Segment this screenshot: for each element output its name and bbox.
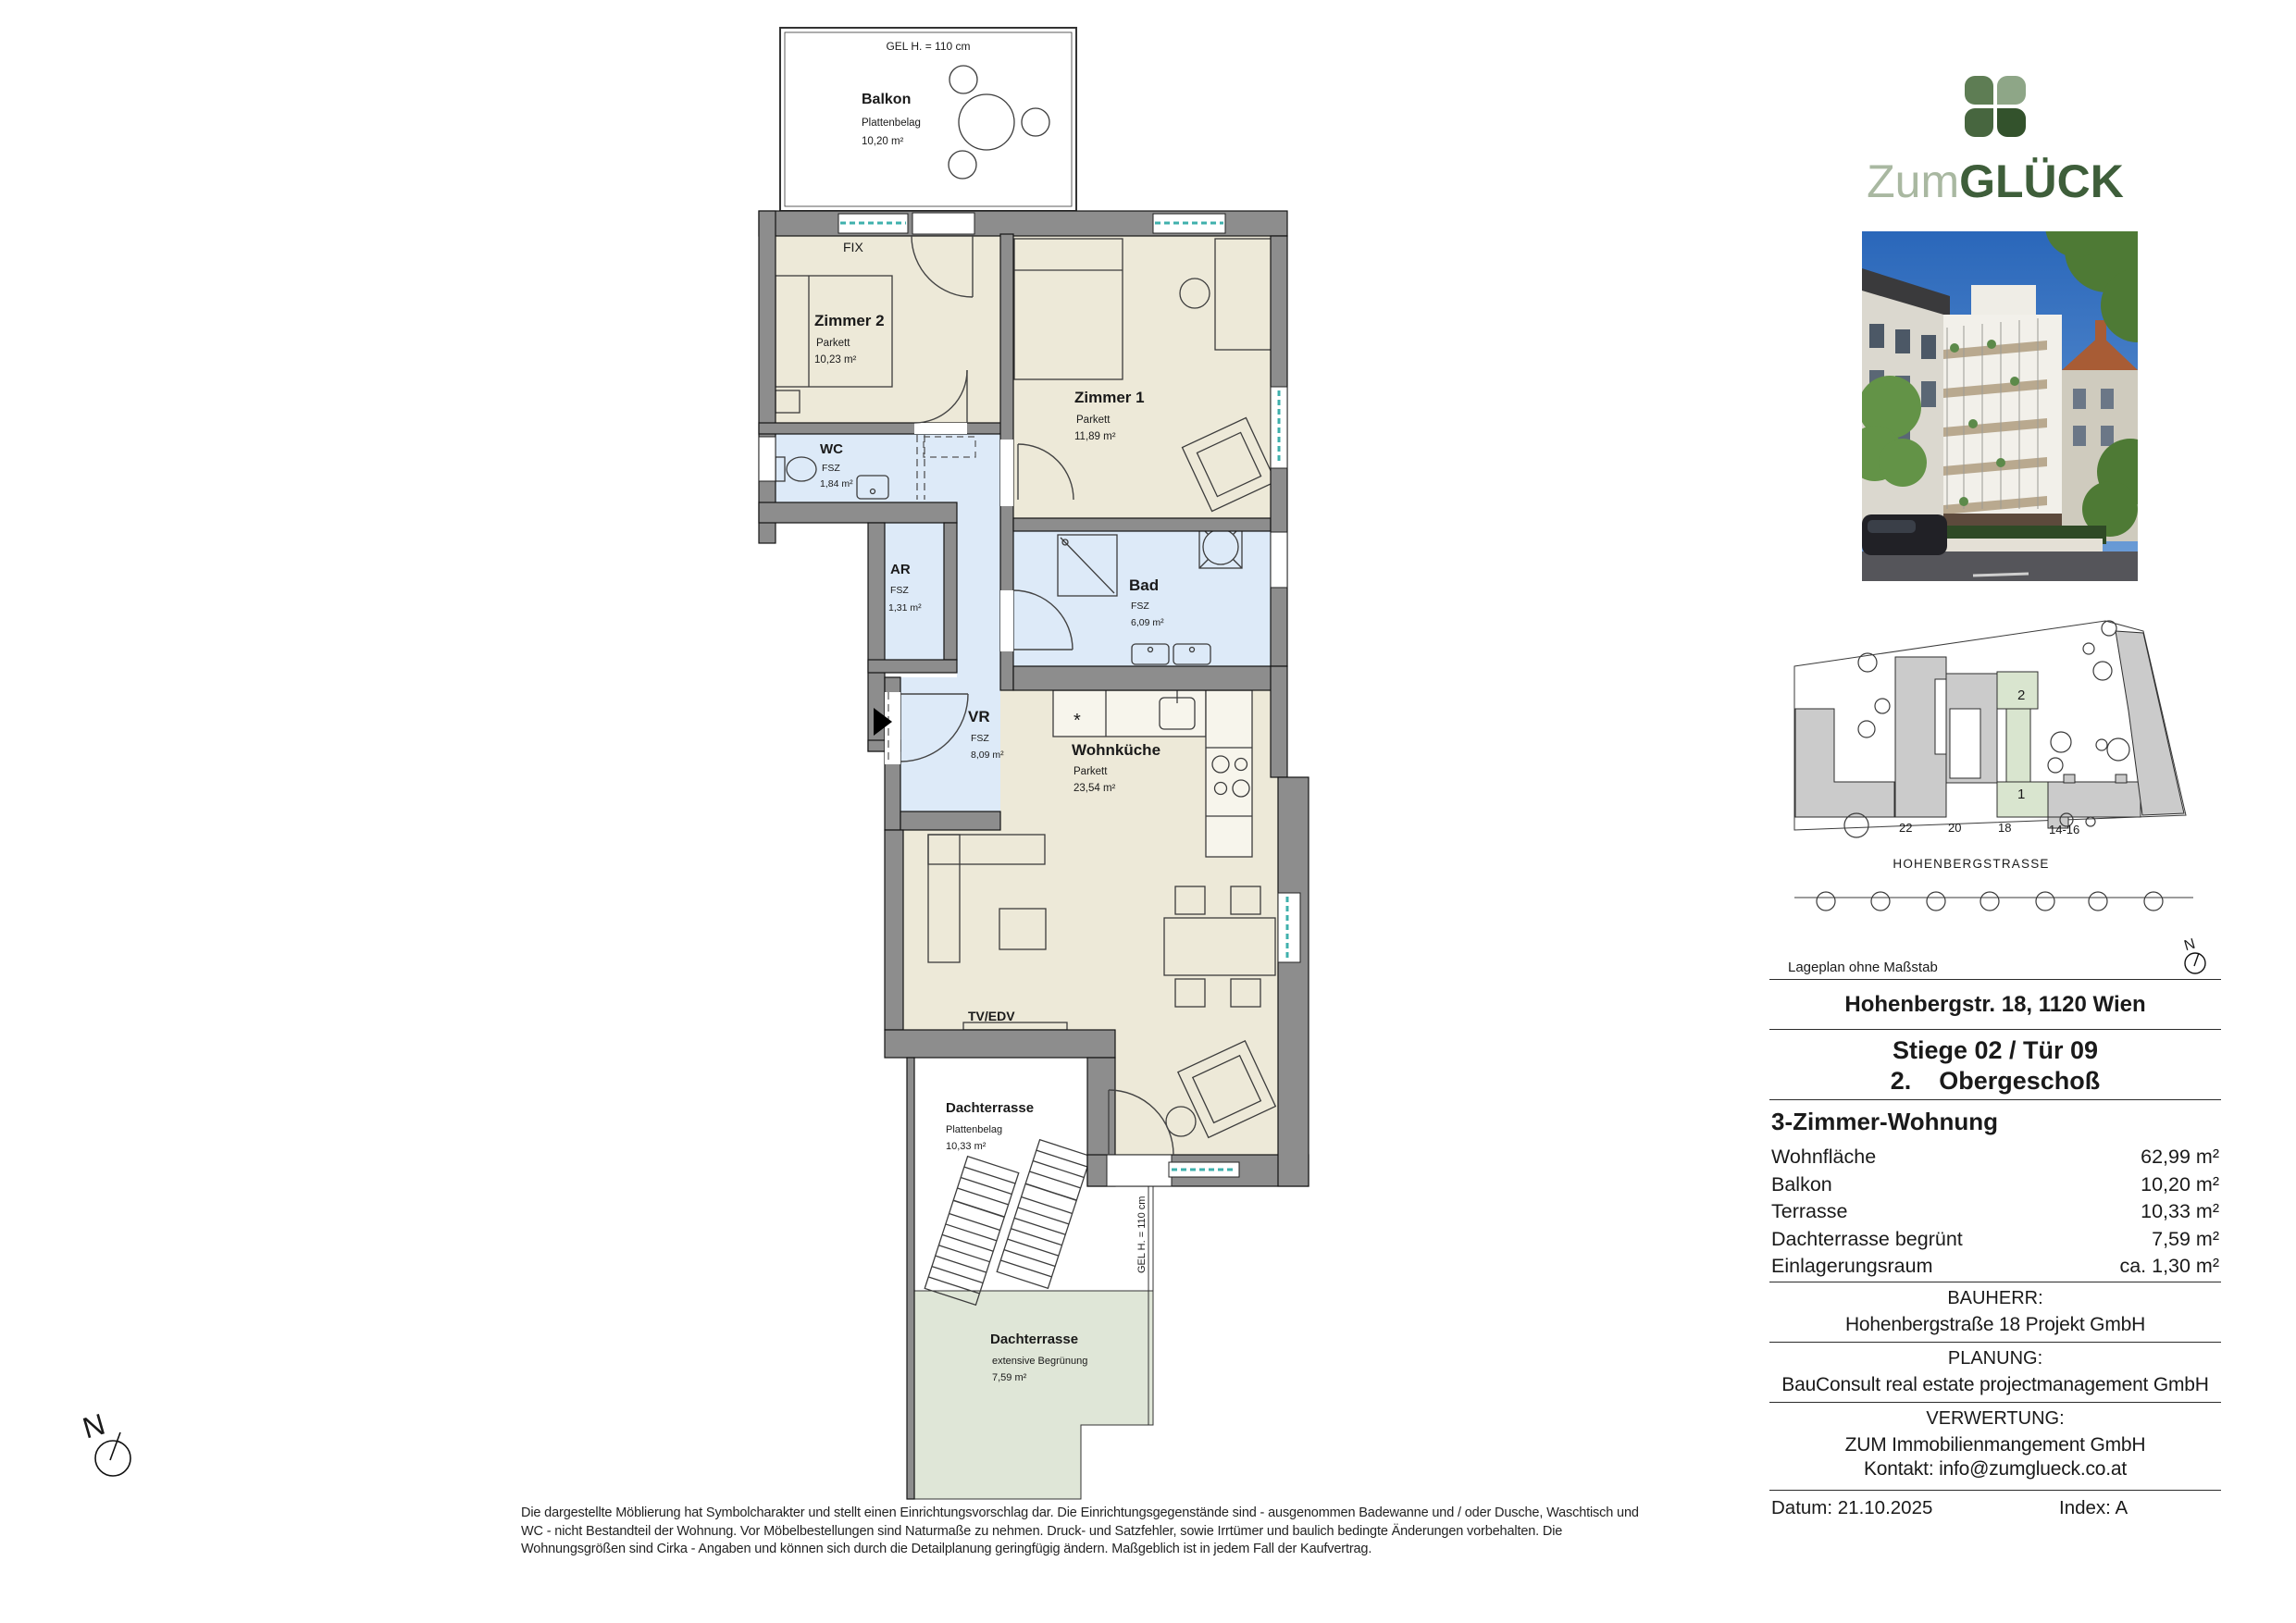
kitchen-counter-icon — [1206, 690, 1252, 857]
site-north-compass: N — [2182, 936, 2205, 973]
vr-name: VR — [968, 708, 990, 725]
area-row: Terrasse10,33 m² — [1771, 1200, 2219, 1228]
area-value: 10,33 m² — [2141, 1200, 2219, 1223]
area-row: Dachterrasse begrünt7,59 m² — [1771, 1228, 2219, 1256]
area-value: ca. 1,30 m² — [2119, 1255, 2219, 1278]
clover-icon — [1965, 76, 2026, 137]
divider — [1769, 1342, 2221, 1343]
north-compass: N — [74, 1397, 167, 1499]
area-row: Einlagerungsraumca. 1,30 m² — [1771, 1255, 2219, 1282]
bauherr-heading: BAUHERR: — [1769, 1288, 2221, 1309]
svg-text:10,23 m²: 10,23 m² — [814, 354, 857, 365]
svg-text:FSZ: FSZ — [971, 733, 989, 744]
svg-text:23,54 m²: 23,54 m² — [1074, 783, 1116, 794]
fix-label: FIX — [843, 240, 863, 254]
svg-text:ZumGLÜCK: ZumGLÜCK — [1867, 155, 2124, 207]
svg-text:Parkett: Parkett — [1074, 766, 1108, 777]
svg-text:6,09 m²: 6,09 m² — [1131, 617, 1164, 628]
brand-prefix: Zum — [1867, 155, 1959, 207]
compass-circle-icon — [95, 1441, 130, 1476]
disclaimer-line: Die dargestellte Möblierung hat Symbolch… — [521, 1505, 1733, 1523]
svg-text:8,09 m²: 8,09 m² — [971, 750, 1004, 761]
planung-heading: PLANUNG: — [1769, 1348, 2221, 1369]
disclaimer-line: WC - nicht Bestandteil der Wohnung. Vor … — [521, 1523, 1733, 1542]
floorplan-sheet: GEL H. = 110 cm Balkon Plattenbelag 10,2… — [0, 0, 2296, 1623]
house-numbers: 22 20 18 14-16 — [1899, 821, 2079, 836]
zimmer1-name: Zimmer 1 — [1074, 389, 1145, 406]
svg-text:FSZ: FSZ — [1131, 601, 1149, 612]
area-label: Balkon — [1771, 1173, 1832, 1196]
svg-text:FSZ: FSZ — [822, 463, 840, 474]
svg-text:14-16: 14-16 — [2049, 823, 2079, 836]
svg-text:1,84 m²: 1,84 m² — [820, 478, 853, 489]
dishwasher-symbol: * — [1074, 711, 1081, 731]
disclaimer: Die dargestellte Möblierung hat Symbolch… — [521, 1505, 1733, 1559]
site-plan: 2 1 22 20 18 14-16 HOHENBERGSTRASSE N La… — [1786, 618, 2221, 981]
area-row: Wohnfläche62,99 m² — [1771, 1146, 2219, 1173]
svg-text:Parkett: Parkett — [816, 338, 850, 349]
zimmer1-area — [1013, 236, 1271, 518]
area-label: Terrasse — [1771, 1200, 1847, 1223]
divider — [1769, 979, 2221, 980]
unit-type: 3-Zimmer-Wohnung — [1771, 1108, 2221, 1136]
verwertung-value2: Kontakt: info@zumglueck.co.at — [1769, 1458, 2221, 1481]
gel-terrasse-label: GEL H. = 110 cm — [1136, 1196, 1148, 1273]
svg-text:22: 22 — [1899, 821, 1912, 835]
unit-marker-2: 2 — [2017, 688, 2025, 703]
balkon-m2: 10,20 m² — [862, 136, 904, 147]
verwertung-heading: VERWERTUNG: — [1769, 1408, 2221, 1430]
address: Hohenbergstr. 18, 1120 Wien — [1769, 992, 2221, 1018]
brand-suffix: GLÜCK — [1959, 155, 2124, 207]
stair-door: Stiege 02 / Tür 09 — [1769, 1036, 2221, 1065]
unit-marker-1: 1 — [2017, 787, 2025, 802]
divider — [1769, 1402, 2221, 1403]
svg-text:20: 20 — [1948, 821, 1961, 835]
area-value: 62,99 m² — [2141, 1146, 2219, 1169]
area-rows: Wohnfläche62,99 m²Balkon10,20 m²Terrasse… — [1771, 1146, 2219, 1282]
area-value: 10,20 m² — [2141, 1173, 2219, 1196]
bad-name: Bad — [1129, 576, 1159, 594]
svg-text:N: N — [2182, 936, 2197, 955]
north-letter: N — [79, 1407, 108, 1445]
balkon-finish: Plattenbelag — [862, 118, 921, 129]
svg-text:7,59 m²: 7,59 m² — [992, 1372, 1027, 1383]
area-label: Einlagerungsraum — [1771, 1255, 1933, 1278]
divider — [1769, 1490, 2221, 1491]
divider — [1769, 1282, 2221, 1282]
disclaimer-line: Wohnungsgrößen sind Cirka - Angaben und … — [521, 1541, 1733, 1559]
area-value: 7,59 m² — [2152, 1228, 2219, 1251]
svg-text:18: 18 — [1998, 821, 2011, 835]
index: Index: A — [2059, 1497, 2128, 1519]
divider — [1769, 1099, 2221, 1100]
verwertung-value1: ZUM Immobilienmangement GmbH — [1769, 1434, 2221, 1456]
svg-text:FSZ: FSZ — [890, 585, 909, 596]
street-name: HOHENBERGSTRASSE — [1893, 857, 2049, 871]
area-row: Balkon10,20 m² — [1771, 1173, 2219, 1201]
svg-text:Parkett: Parkett — [1076, 415, 1111, 426]
street-trees — [1817, 892, 2163, 911]
svg-text:11,89 m²: 11,89 m² — [1074, 431, 1116, 442]
svg-text:1,31 m²: 1,31 m² — [888, 602, 922, 613]
gruendach-name: Dachterrasse — [990, 1332, 1078, 1347]
zumglueck-logo: ZumGLÜCK — [1769, 51, 2221, 208]
planung-value: BauConsult real estate projectmanagement… — [1769, 1374, 2221, 1396]
floor-label: 2. Obergeschoß — [1769, 1067, 2221, 1096]
area-label: Dachterrasse begrünt — [1771, 1228, 1963, 1251]
floorplan-drawing: GEL H. = 110 cm Balkon Plattenbelag 10,2… — [738, 19, 1312, 1521]
svg-text:Plattenbelag: Plattenbelag — [946, 1124, 1002, 1135]
ar-name: AR — [890, 562, 911, 577]
area-label: Wohnfläche — [1771, 1146, 1876, 1169]
bauherr-value: Hohenbergstraße 18 Projekt GmbH — [1769, 1314, 2221, 1336]
balkon-name: Balkon — [862, 92, 911, 107]
balkon-area — [780, 28, 1076, 211]
tv-edv-label: TV/EDV — [968, 1009, 1015, 1023]
svg-text:10,33 m²: 10,33 m² — [946, 1141, 987, 1152]
wohnkueche-name: Wohnküche — [1072, 741, 1160, 759]
divider — [1769, 1029, 2221, 1030]
terrasse-name: Dachterrasse — [946, 1100, 1034, 1116]
svg-text:extensive Begrünung: extensive Begrünung — [992, 1356, 1087, 1367]
wc-name: WC — [820, 441, 843, 457]
building-rendering — [1862, 231, 2138, 581]
datum: Datum: 21.10.2025 — [1771, 1497, 1932, 1519]
gel-balkon-label: GEL H. = 110 cm — [886, 40, 970, 53]
gruendach-area — [914, 1291, 1153, 1499]
siteplan-caption: Lageplan ohne Maßstab — [1788, 960, 1938, 975]
zimmer2-name: Zimmer 2 — [814, 312, 885, 329]
